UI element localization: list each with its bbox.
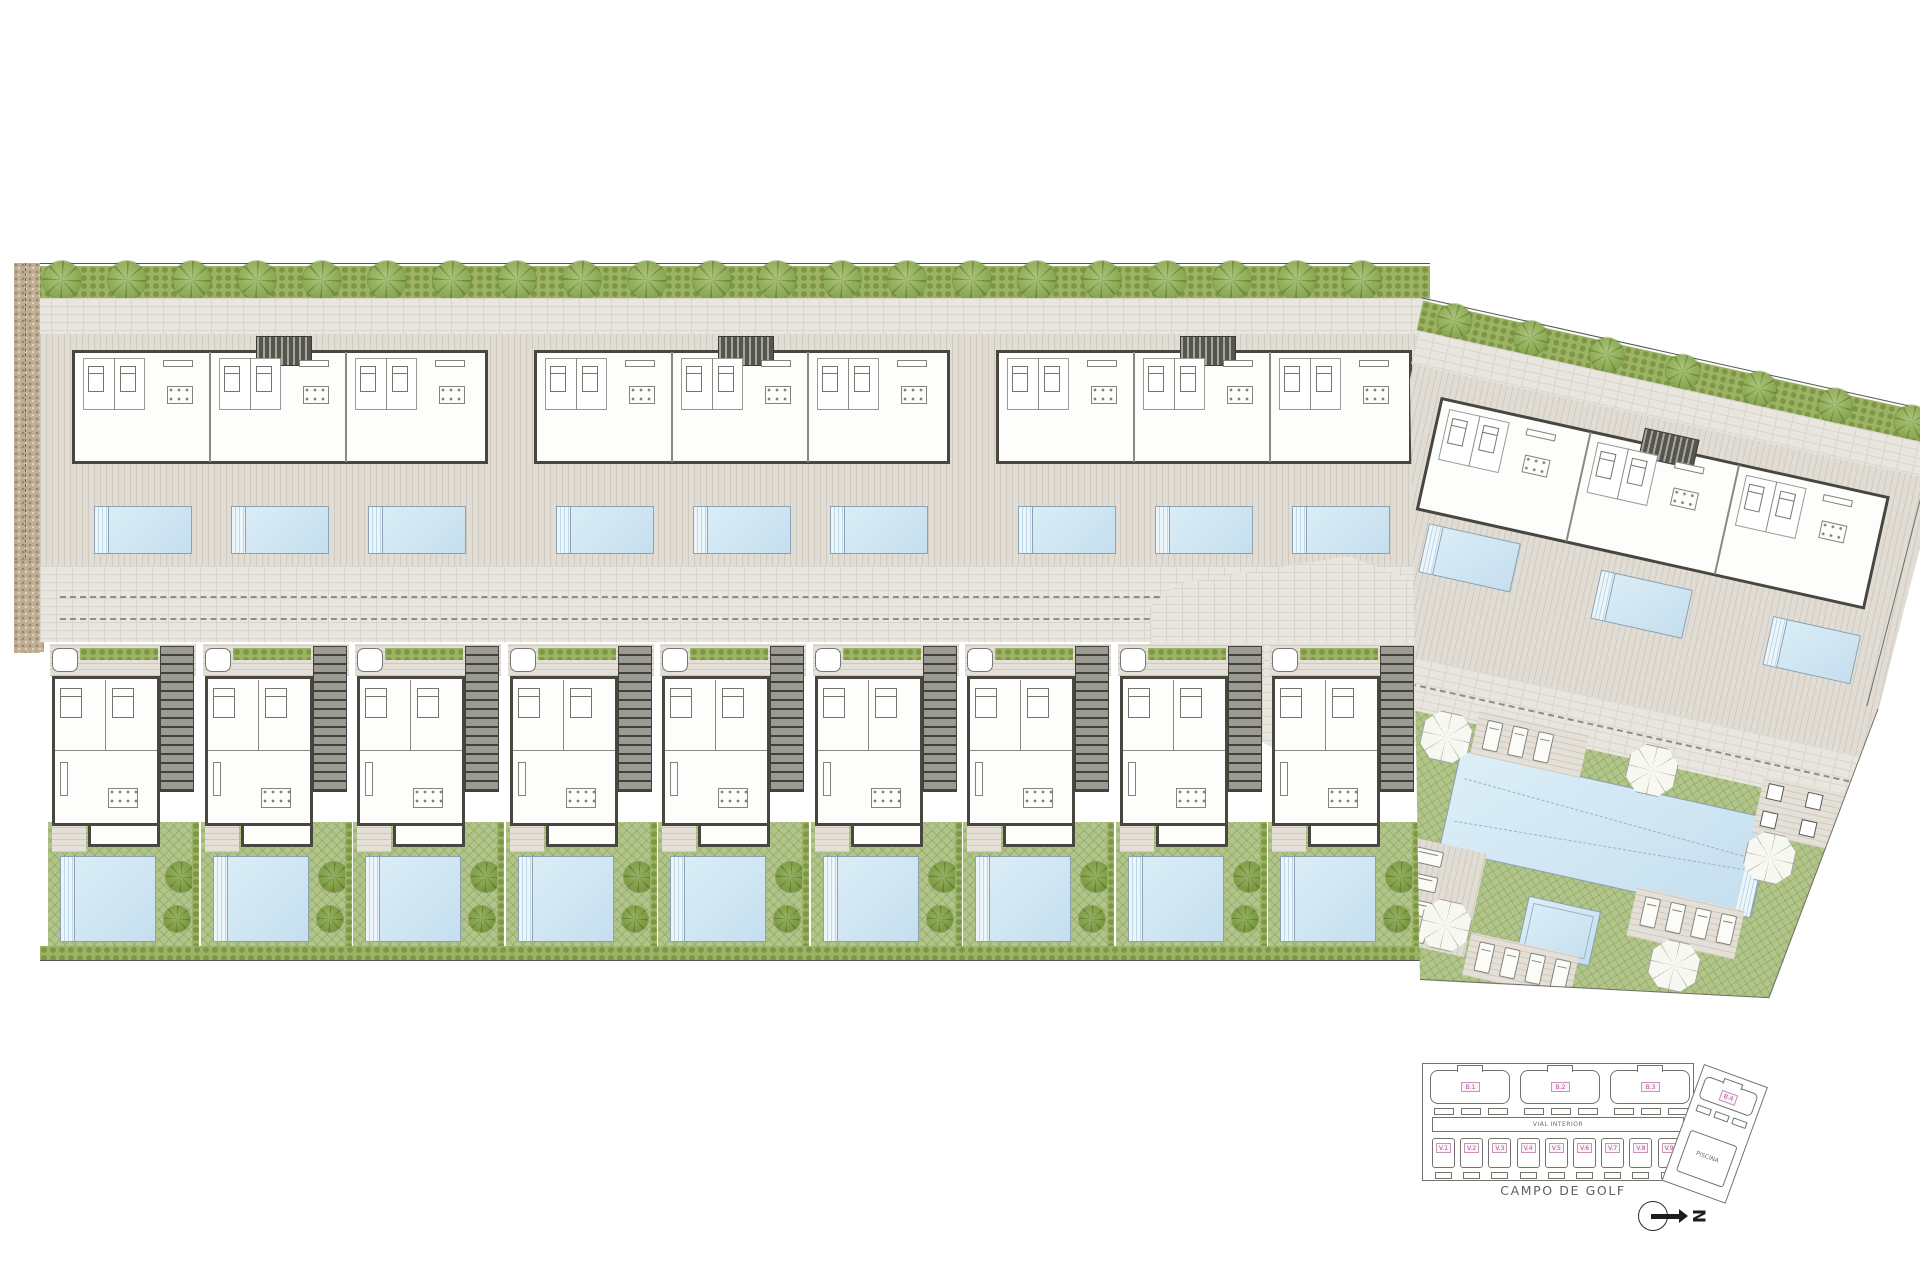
villa-dining-extension — [851, 823, 923, 847]
sofa-icon — [1128, 762, 1136, 796]
bed-icon — [360, 366, 376, 392]
perimeter-hedge — [35, 266, 1430, 298]
villa-stairs — [1228, 646, 1262, 792]
sun-deck — [1470, 711, 1589, 778]
villa-deck-patch — [52, 826, 86, 852]
bed-icon — [718, 366, 734, 392]
sofa-icon — [1359, 360, 1389, 367]
parasol-icon — [1416, 707, 1476, 767]
sofa-icon — [60, 762, 68, 796]
villa-deck-patch — [662, 826, 696, 852]
sun-lounger-icon — [1639, 896, 1661, 929]
planter-box-icon — [1765, 783, 1784, 802]
villa-divider-hedge — [345, 822, 352, 948]
pool-steps — [671, 857, 685, 941]
villa-interior-partition-v — [258, 680, 259, 750]
key-plan-b4-pool — [1695, 1104, 1711, 1116]
villa-entry-planter — [538, 648, 616, 660]
tree-icon — [1083, 261, 1121, 299]
villa-plot-v1 — [48, 642, 198, 948]
unit-partition-wall — [1133, 352, 1135, 462]
bed-icon — [670, 688, 692, 718]
dining-table-icon — [1176, 788, 1206, 808]
key-plan-villa-pool — [1435, 1172, 1452, 1179]
villa-interior-partition-v — [563, 680, 564, 750]
villa-interior-partition-h — [1123, 750, 1225, 751]
planter-box-icon — [1805, 792, 1824, 811]
tree-icon — [43, 261, 81, 299]
villa-entry-pad — [52, 648, 78, 672]
block-pool — [830, 506, 928, 554]
tree-icon — [433, 261, 471, 299]
unit-bedroom-partition — [576, 358, 577, 410]
villa-entry-planter — [843, 648, 921, 660]
bed-icon — [686, 366, 702, 392]
villa-stairs — [160, 646, 194, 792]
sun-lounger-icon — [1690, 907, 1712, 940]
villa-stairs — [618, 646, 652, 792]
unit-partition-wall — [209, 352, 211, 462]
villa-pool — [365, 856, 461, 942]
key-plan-villa-pool — [1632, 1172, 1649, 1179]
sofa-icon — [670, 762, 678, 796]
key-plan-villa-label: V.5 — [1549, 1143, 1564, 1153]
bed-icon — [256, 366, 272, 392]
pool-steps — [557, 507, 571, 553]
sun-lounger-icon — [1507, 725, 1529, 758]
villa-entry-planter — [233, 648, 311, 660]
pool-steps — [831, 507, 845, 553]
sofa-icon — [823, 762, 831, 796]
key-plan-block-label: B.3 — [1641, 1082, 1660, 1092]
villa-entry-pad — [1272, 648, 1298, 672]
villas-bottom-boundary-line — [40, 960, 1430, 961]
pool-steps — [1281, 857, 1295, 941]
villa-entry-planter — [80, 648, 158, 660]
planter-box-icon — [1759, 810, 1778, 829]
bed-icon — [582, 366, 598, 392]
bed-icon — [722, 688, 744, 718]
palm-tree-icon — [622, 906, 648, 932]
sofa-icon — [163, 360, 193, 367]
villa-pool — [975, 856, 1071, 942]
sun-lounger-icon — [1664, 902, 1686, 935]
tree-icon — [1148, 261, 1186, 299]
villa-dining-extension — [1003, 823, 1075, 847]
villa-stairs — [313, 646, 347, 792]
pool-steps — [95, 507, 109, 553]
key-plan-villa-shape: V.4 — [1517, 1138, 1540, 1168]
bed-icon — [1316, 366, 1332, 392]
villa-dining-extension — [698, 823, 770, 847]
key-plan-block-label: B.1 — [1461, 1082, 1480, 1092]
key-plan-block-pool — [1551, 1108, 1571, 1115]
dining-table-icon — [1363, 386, 1389, 404]
sun-lounger-icon — [1481, 720, 1503, 753]
bed-icon — [265, 688, 287, 718]
key-plan-road: VIAL INTERIOR — [1432, 1117, 1684, 1132]
villa-interior-partition-h — [208, 750, 310, 751]
tree-icon — [953, 261, 991, 299]
north-arrow-bar — [1651, 1214, 1679, 1219]
villa-plot-v7 — [963, 642, 1113, 948]
bed-icon — [1180, 366, 1196, 392]
villa-entry-planter — [1300, 648, 1378, 660]
villa-pool — [1280, 856, 1376, 942]
key-plan-villa-label: V.7 — [1605, 1143, 1620, 1153]
dining-table-icon — [871, 788, 901, 808]
bed-icon — [1027, 688, 1049, 718]
villa-dining-extension — [393, 823, 465, 847]
villa-divider-hedge — [497, 822, 504, 948]
pool-steps — [519, 857, 533, 941]
key-plan-villa-pool — [1576, 1172, 1593, 1179]
master-plan-drawing — [0, 0, 1920, 1040]
dining-table-icon — [1227, 386, 1253, 404]
sofa-icon — [975, 762, 983, 796]
villa-interior-partition-h — [513, 750, 615, 751]
villa-entry-planter — [995, 648, 1073, 660]
block-pool — [231, 506, 329, 554]
palm-tree-icon — [927, 906, 953, 932]
key-plan-block-shape: B.2 — [1520, 1070, 1600, 1104]
villa-interior-partition-h — [970, 750, 1072, 751]
villa-interior-partition-h — [360, 750, 462, 751]
villa-interior-partition-v — [1020, 680, 1021, 750]
villa-plot-v8 — [1116, 642, 1266, 948]
tree-icon — [238, 261, 276, 299]
bed-icon — [60, 688, 82, 718]
villa-divider-hedge — [1107, 822, 1114, 948]
key-plan-block-pool — [1461, 1108, 1481, 1115]
villa-pool — [1128, 856, 1224, 942]
sofa-icon — [518, 762, 526, 796]
villa-interior-partition-v — [1325, 680, 1326, 750]
tree-icon — [758, 261, 796, 299]
key-plan-block-pool — [1614, 1108, 1634, 1115]
parasol-icon — [1622, 741, 1682, 801]
villa-entry-pad — [662, 648, 688, 672]
pool-steps — [1019, 507, 1033, 553]
tree-icon — [303, 261, 341, 299]
bed-icon — [822, 366, 838, 392]
unit-bedroom-partition — [386, 358, 387, 410]
pool-steps — [61, 857, 75, 941]
villa-dining-extension — [1156, 823, 1228, 847]
apartment-blocks-terrace-band — [40, 334, 1430, 566]
villa-divider-hedge — [650, 822, 657, 948]
villa-entry-pad — [510, 648, 536, 672]
pool-steps — [366, 857, 380, 941]
key-plan: B.1B.2B.3V.1V.2V.3V.4V.5V.6V.7V.8V.9 VIA… — [1412, 1052, 1892, 1278]
villas-bottom-hedge — [40, 946, 1430, 960]
bed-icon — [550, 366, 566, 392]
sofa-icon — [761, 360, 791, 367]
dining-table-icon — [413, 788, 443, 808]
unit-bedroom-partition — [1038, 358, 1039, 410]
key-plan-villa-label: V.8 — [1633, 1143, 1648, 1153]
key-plan-villa-label: V.1 — [1436, 1143, 1451, 1153]
villa-entry-pad — [357, 648, 383, 672]
dining-table-icon — [765, 386, 791, 404]
tree-icon — [628, 261, 666, 299]
bed-icon — [570, 688, 592, 718]
block-pool — [1155, 506, 1253, 554]
dining-table-icon — [1328, 788, 1358, 808]
bed-icon — [120, 366, 136, 392]
villa-interior-partition-v — [105, 680, 106, 750]
sun-lounger-icon — [1715, 913, 1737, 946]
dining-table-icon — [303, 386, 329, 404]
villa-dining-extension — [241, 823, 313, 847]
palm-tree-icon — [1079, 906, 1105, 932]
palm-tree-icon — [164, 906, 190, 932]
key-plan-villa-shape: V.7 — [1601, 1138, 1624, 1168]
key-plan-villa-shape: V.6 — [1573, 1138, 1596, 1168]
bed-icon — [417, 688, 439, 718]
villa-divider-hedge — [192, 822, 199, 948]
villa-deck-patch — [205, 826, 239, 852]
north-arrow-letter: N — [1687, 1206, 1709, 1226]
villa-deck-patch — [1120, 826, 1154, 852]
key-plan-villa-shape: V.2 — [1460, 1138, 1483, 1168]
sofa-icon — [299, 360, 329, 367]
villa-pool — [213, 856, 309, 942]
unit-bedroom-partition — [1310, 358, 1311, 410]
unit-partition-wall — [1269, 352, 1271, 462]
block-pool — [94, 506, 192, 554]
villa-interior-partition-v — [868, 680, 869, 750]
tree-icon — [173, 261, 211, 299]
dining-table-icon — [629, 386, 655, 404]
dining-table-icon — [439, 386, 465, 404]
palm-tree-icon — [469, 906, 495, 932]
key-plan-villa-shape: V.5 — [1545, 1138, 1568, 1168]
key-plan-block-tab — [1547, 1065, 1573, 1072]
tree-icon — [368, 261, 406, 299]
sun-deck — [1462, 932, 1579, 999]
tree-icon — [498, 261, 536, 299]
tree-icon — [888, 261, 926, 299]
block-pool — [1018, 506, 1116, 554]
villa-plot-v6 — [811, 642, 961, 948]
villa-deck-patch — [1272, 826, 1306, 852]
pool-steps — [694, 507, 708, 553]
block-pool — [693, 506, 791, 554]
key-plan-block-label: B.2 — [1551, 1082, 1570, 1092]
tree-icon — [1213, 261, 1251, 299]
tree-icon — [1018, 261, 1056, 299]
villa-divider-hedge — [802, 822, 809, 948]
key-plan-villa-shape: V.3 — [1488, 1138, 1511, 1168]
bed-icon — [1044, 366, 1060, 392]
villa-pool — [60, 856, 156, 942]
villa-interior-partition-h — [1275, 750, 1377, 751]
villa-deck-patch — [510, 826, 544, 852]
dining-table-icon — [566, 788, 596, 808]
sofa-icon — [213, 762, 221, 796]
villa-stairs — [465, 646, 499, 792]
bed-icon — [1012, 366, 1028, 392]
key-plan-b4-pool — [1731, 1117, 1747, 1129]
sofa-icon — [365, 762, 373, 796]
villa-entry-planter — [690, 648, 768, 660]
pool-steps — [369, 507, 383, 553]
villa-entry-pad — [1120, 648, 1146, 672]
bed-icon — [224, 366, 240, 392]
villa-interior-partition-h — [55, 750, 157, 751]
bed-icon — [88, 366, 104, 392]
bed-icon — [875, 688, 897, 718]
villa-interior-partition-v — [715, 680, 716, 750]
key-plan-road-label: VIAL INTERIOR — [1433, 1118, 1683, 1131]
bed-icon — [365, 688, 387, 718]
dining-table-icon — [1091, 386, 1117, 404]
key-plan-villa-shape: V.1 — [1432, 1138, 1455, 1168]
bed-icon — [1332, 688, 1354, 718]
villa-entry-planter — [1148, 648, 1226, 660]
key-plan-villa-label: V.2 — [1464, 1143, 1479, 1153]
sun-lounger-icon — [1473, 941, 1495, 974]
villa-divider-hedge — [955, 822, 962, 948]
bed-icon — [1280, 688, 1302, 718]
villa-deck-patch — [815, 826, 849, 852]
tree-icon — [823, 261, 861, 299]
bed-icon — [518, 688, 540, 718]
villa-plot-v2 — [201, 642, 351, 948]
dining-table-icon — [167, 386, 193, 404]
key-plan-villa-pool — [1463, 1172, 1480, 1179]
villa-entry-planter — [385, 648, 463, 660]
palm-tree-icon — [774, 906, 800, 932]
bed-icon — [823, 688, 845, 718]
sun-lounger-icon — [1524, 952, 1546, 985]
villa-pool — [518, 856, 614, 942]
block-pool — [1292, 506, 1390, 554]
unit-bedroom-partition — [1174, 358, 1175, 410]
sofa-icon — [1280, 762, 1288, 796]
bed-icon — [213, 688, 235, 718]
palm-tree-icon — [317, 906, 343, 932]
villa-interior-partition-v — [1173, 680, 1174, 750]
key-plan-block-shape: B.1 — [1430, 1070, 1510, 1104]
north-arrow: N — [1638, 1198, 1718, 1244]
bed-icon — [1128, 688, 1150, 718]
tree-icon — [563, 261, 601, 299]
bed-icon — [975, 688, 997, 718]
dining-table-icon — [261, 788, 291, 808]
key-plan-b4-pool — [1713, 1111, 1729, 1123]
villa-plot-v5 — [658, 642, 808, 948]
villa-stairs — [1075, 646, 1109, 792]
dining-table-icon — [108, 788, 138, 808]
bed-icon — [1180, 688, 1202, 718]
villa-stairs — [1380, 646, 1414, 792]
unit-bedroom-partition — [114, 358, 115, 410]
pool-steps — [214, 857, 228, 941]
sofa-icon — [435, 360, 465, 367]
key-plan-villa-pool — [1548, 1172, 1565, 1179]
bed-icon — [854, 366, 870, 392]
block-pool — [368, 506, 466, 554]
palm-tree-icon — [1384, 906, 1410, 932]
villa-dining-extension — [1308, 823, 1380, 847]
villa-stairs — [770, 646, 804, 792]
key-plan-piscina-label: PISCINA — [1683, 1146, 1731, 1170]
pool-steps — [232, 507, 246, 553]
sofa-icon — [1087, 360, 1117, 367]
planter-box-icon — [1798, 819, 1817, 838]
key-plan-block-pool — [1578, 1108, 1598, 1115]
sun-lounger-icon — [1499, 947, 1521, 980]
unit-bedroom-partition — [250, 358, 251, 410]
sofa-icon — [897, 360, 927, 367]
key-plan-block-tab — [1457, 1065, 1483, 1072]
tree-icon — [108, 261, 146, 299]
pool-steps — [976, 857, 990, 941]
key-plan-block-pool — [1524, 1108, 1544, 1115]
unit-partition-wall — [807, 352, 809, 462]
golf-course-label: CAMPO DE GOLF — [1468, 1183, 1658, 1199]
villas-row-band — [40, 642, 1430, 962]
sofa-icon — [1223, 360, 1253, 367]
unit-partition-wall — [671, 352, 673, 462]
key-plan-villa-label: V.3 — [1492, 1143, 1507, 1153]
unit-bedroom-partition — [848, 358, 849, 410]
key-plan-villa-pool — [1604, 1172, 1621, 1179]
key-plan-block-pool — [1434, 1108, 1454, 1115]
villa-dining-extension — [546, 823, 618, 847]
villa-stairs — [923, 646, 957, 792]
pool-steps — [1293, 507, 1307, 553]
tree-icon — [1278, 261, 1316, 299]
bed-icon — [1284, 366, 1300, 392]
unit-partition-wall — [345, 352, 347, 462]
key-plan-villa-shape: V.8 — [1629, 1138, 1652, 1168]
villa-interior-partition-h — [665, 750, 767, 751]
key-plan-block-pool — [1488, 1108, 1508, 1115]
key-plan-block-pool — [1641, 1108, 1661, 1115]
villa-entry-pad — [205, 648, 231, 672]
villa-pool — [670, 856, 766, 942]
key-plan-block-shape: B.3 — [1610, 1070, 1690, 1104]
villa-deck-patch — [967, 826, 1001, 852]
villa-deck-patch — [357, 826, 391, 852]
key-plan-villa-pool — [1520, 1172, 1537, 1179]
block-pool — [556, 506, 654, 554]
key-plan-block-tab — [1637, 1065, 1663, 1072]
villa-pool — [823, 856, 919, 942]
villa-interior-partition-v — [410, 680, 411, 750]
villa-dining-extension — [88, 823, 160, 847]
bed-icon — [112, 688, 134, 718]
pool-steps — [1129, 857, 1143, 941]
pool-steps — [1156, 507, 1170, 553]
bed-icon — [1148, 366, 1164, 392]
road-centerline-2 — [60, 618, 1240, 620]
pedestrian-walkway — [35, 298, 1430, 334]
palm-tree-icon — [1232, 906, 1258, 932]
villa-divider-hedge — [1260, 822, 1267, 948]
villa-plot-v4 — [506, 642, 656, 948]
villa-entry-pad — [815, 648, 841, 672]
dining-table-icon — [718, 788, 748, 808]
sun-lounger-icon — [1532, 731, 1554, 764]
tree-icon — [693, 261, 731, 299]
villa-plot-v9 — [1268, 642, 1418, 948]
road-centerline-1 — [60, 596, 1240, 598]
key-plan-villa-pool — [1491, 1172, 1508, 1179]
